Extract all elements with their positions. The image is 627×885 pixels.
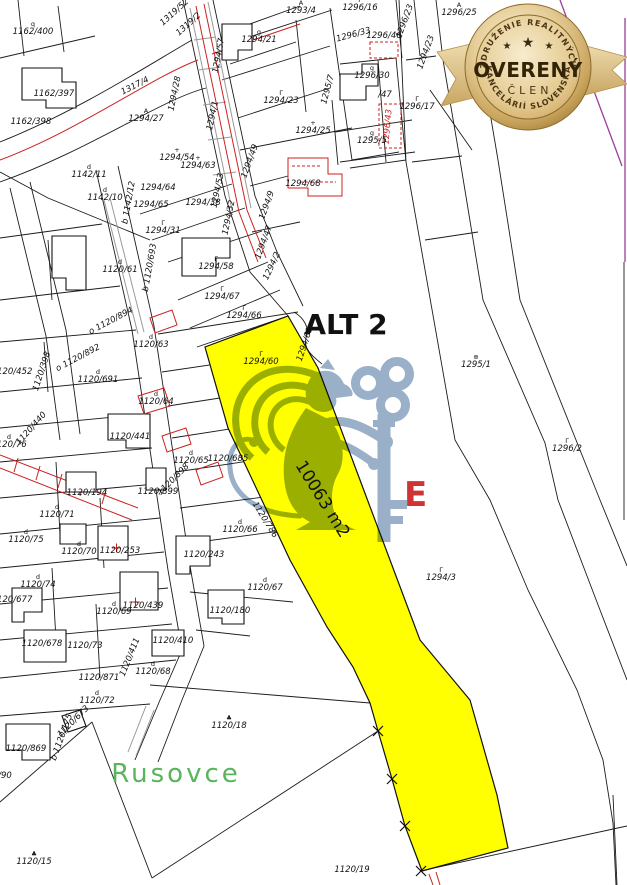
parcel-label: 1120/243 [184,550,225,560]
place-label: Rusovce [111,759,241,789]
parcel-label: 1120/410 [153,636,194,646]
parcel-symbol: d [55,503,59,511]
watermark-letter: E [404,475,427,515]
parcel-label: 1294/64 [140,183,175,193]
highlighted-parcel [205,316,508,871]
star-icon: ★ [522,35,535,51]
parcel-symbol: + [174,146,179,154]
parcel-label: 1294/49 [239,143,260,180]
parcel-label: 1120/68 [135,667,171,677]
parcel-label: 1120/685 [208,454,249,464]
parcel-label: 1294/3 [426,573,456,583]
parcel-symbol: Γ [358,0,362,4]
parcel-label: 1296/2 [552,444,582,454]
parcel-symbol: d [7,433,11,441]
parcel-label: 1120/452 [0,367,32,377]
parcel-symbol: q [31,20,35,28]
parcel-label: 1162/397 [34,89,75,99]
parcel-symbol: d [36,573,40,581]
parcel-label: 1120/66 [222,525,258,535]
badge-title: OVERENÝ [473,58,582,82]
parcel-label: b 1120/693 [141,243,159,293]
parcel-label: 1294/60 [243,357,278,367]
parcel-label: 1295/5 [357,136,387,146]
parcel-label: 1120/65 [173,456,208,466]
parcel-symbol: ♣ [226,714,232,722]
parcel-label: 1296/25 [441,8,476,18]
verified-member-badge: ZDRUŽENIE REALITNÝCH KANCELÁRIÍ SLOVENSK… [437,4,627,130]
parcel-label: 1295/1 [461,360,491,370]
parcel-label: 1120/70 [61,547,96,557]
mid-boundaries [140,8,406,347]
cadastral-map: E ALT 2 10063 m2 Rusovce 1162/400q1162/3… [0,0,627,885]
parcel-label: 1294/27 [128,114,164,124]
parcel-symbol: d [96,368,100,376]
parcel-label: 1296/46 [366,31,402,41]
parcel-symbol: d [151,660,155,668]
parcel-symbol: d [238,518,242,526]
parcel-label: o 1120/892 [54,342,102,374]
parcel-label: 1120/398 [31,350,53,392]
parcel-symbol: Γ [161,219,165,227]
parcel-label: 1120/73 [67,641,102,651]
parcel-label: 1120/871 [79,673,120,683]
parcel-symbol: ♣ [31,850,37,858]
parcel-label: 1120/180 [210,606,251,616]
parcel-label: 1294/68 [285,179,321,189]
parcel-label: 1294/58 [198,262,234,272]
badge-subtitle: ČLEN [508,84,553,97]
parcel-label: 1120/67 [247,583,283,593]
parcel-symbol: d [189,449,193,457]
parcel-label: 1294/66 [226,311,262,321]
parcel-symbol: Γ [214,255,218,263]
star-icon: ★ [503,41,512,52]
parcel-label: 1120/439 [123,601,164,611]
parcel-symbol: Γ [439,566,443,574]
parcel-label: 1120/76 [0,440,27,450]
parcel-label: 1120/691 [78,375,119,385]
parcel-label: 1294/28 [166,75,183,112]
parcel-symbol: d [263,576,267,584]
parcel-symbol: d [87,163,91,171]
parcel-label: 1120/64 [138,397,173,407]
parcel-symbol: d [149,333,153,341]
parcel-label: /90 [0,771,12,781]
parcel-symbol: d [77,540,81,548]
parcel-label: 1142/10 [87,193,122,203]
parcel-label: 1293/4 [286,6,316,16]
parcel-symbol: Γ [565,437,569,445]
parcel-label: 1317/4 [119,75,150,97]
parcel-symbol: d [154,390,158,398]
parcel-symbol: A [457,1,462,9]
parcel-label: 1294/32 [220,199,237,236]
parcel-symbol: Γ [259,350,263,358]
parcel-symbol: g [370,64,374,72]
parcel-label: 1120/194 [67,488,108,498]
parcel-label: 1120/15 [16,857,51,867]
parcel-label: 1120/74 [20,580,55,590]
parcel-label: 1120/63 [133,340,168,350]
parcel-label: 1294/23 [263,96,298,106]
parcel-label: 1294/25 [295,126,330,136]
parcel-symbol: + [195,154,200,162]
alt-variant-label: ALT 2 [304,308,387,341]
parcel-label: 1296/30 [354,71,389,81]
parcel-label: 1294/65 [133,200,168,210]
star-icon: ★ [545,41,554,52]
parcel-symbol: d [118,258,122,266]
parcel-label: /47 [377,90,392,100]
parcel-symbol: A [299,0,304,7]
parcel-label: 1294/31 [145,226,180,236]
parcel-label: 1120/75 [8,535,43,545]
parcel-label: 1120/19 [334,865,369,875]
parcel-label: 1294/63 [180,161,215,171]
parcel-label: 1162/400 [13,27,54,37]
red-boundary-ticks [429,872,440,885]
parcel-symbol: Γ [242,304,246,312]
parcel-symbol: d [95,689,99,697]
parcel-symbol: Γ [415,95,419,103]
parcel-label: 1294/21 [241,35,276,45]
parcel-label: 1294/67 [204,292,240,302]
parcel-label: 1120/678 [22,639,63,649]
parcel-symbol: g [370,129,374,137]
parcel-label: 1162/398 [11,117,52,127]
parcel-symbol: d [112,600,116,608]
parcel-symbol: + [310,119,315,127]
parcel-label: 1142/11 [71,170,106,180]
parcel-symbol: ⊕ [473,353,478,361]
parcel-label: 1294/9 [257,190,277,222]
parcel-label: 1120/253 [100,546,141,556]
parcel-label: 1120/677 [0,595,33,605]
parcel-label: 1120/441 [110,432,151,442]
parcel-symbol: d [103,186,107,194]
parcel-symbol: g [257,28,261,36]
parcel-label: 1295/7 [319,73,337,105]
parcel-label: b 1120/175 [49,713,75,762]
parcel-label: 1120/18 [211,721,247,731]
parcel-label: 1120/71 [39,510,74,520]
parcel-symbol: d [24,528,28,536]
parcel-label: 1296/17 [399,102,435,112]
parcel-label: 1120/869 [6,744,47,754]
parcel-symbol: Γ [220,285,224,293]
parcel-label: 1296/16 [342,3,378,13]
parcel-symbol: A [144,107,149,115]
parcel-label: 1120/61 [102,265,137,275]
parcel-symbol: Γ [279,89,283,97]
